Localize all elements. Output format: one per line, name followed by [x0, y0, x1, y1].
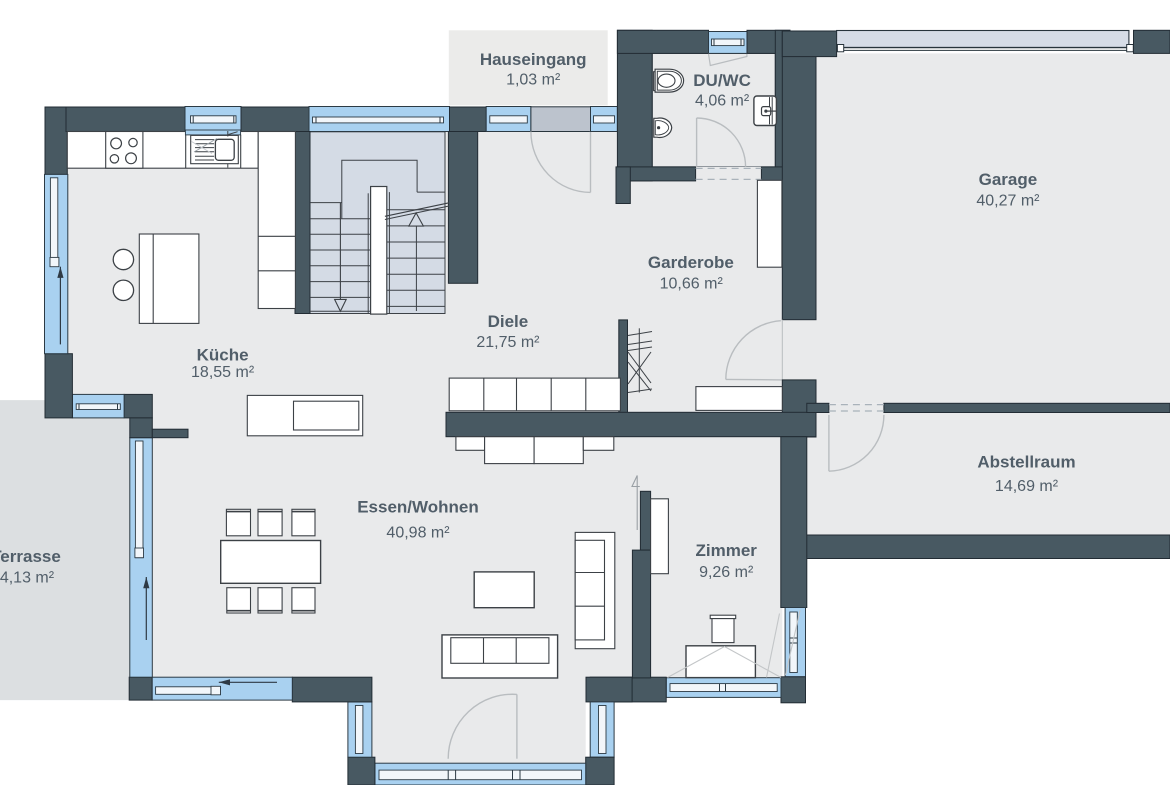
svg-text:21,75 m²: 21,75 m²	[476, 334, 540, 351]
svg-text:24,13 m²: 24,13 m²	[0, 569, 55, 586]
svg-text:Hauseingang: Hauseingang	[480, 50, 587, 69]
svg-text:10,66 m²: 10,66 m²	[660, 275, 724, 292]
svg-text:40,98 m²: 40,98 m²	[386, 524, 450, 541]
svg-text:1,03 m²: 1,03 m²	[506, 72, 561, 89]
svg-text:14,69 m²: 14,69 m²	[995, 478, 1059, 495]
svg-text:Garage: Garage	[979, 170, 1038, 189]
svg-text:DU/WC: DU/WC	[693, 71, 751, 90]
svg-text:Diele: Diele	[488, 312, 529, 331]
svg-text:40,27 m²: 40,27 m²	[976, 193, 1040, 210]
svg-text:Abstellraum: Abstellraum	[977, 452, 1075, 471]
svg-text:4,06 m²: 4,06 m²	[695, 93, 750, 110]
svg-text:Zimmer: Zimmer	[695, 541, 757, 560]
svg-text:Küche: Küche	[197, 345, 249, 364]
svg-text:9,26 m²: 9,26 m²	[699, 564, 754, 581]
svg-text:18,55 m²: 18,55 m²	[191, 364, 255, 381]
svg-text:Terrasse: Terrasse	[0, 547, 61, 566]
svg-text:Essen/Wohnen: Essen/Wohnen	[357, 497, 479, 516]
svg-text:Garderobe: Garderobe	[648, 253, 734, 272]
